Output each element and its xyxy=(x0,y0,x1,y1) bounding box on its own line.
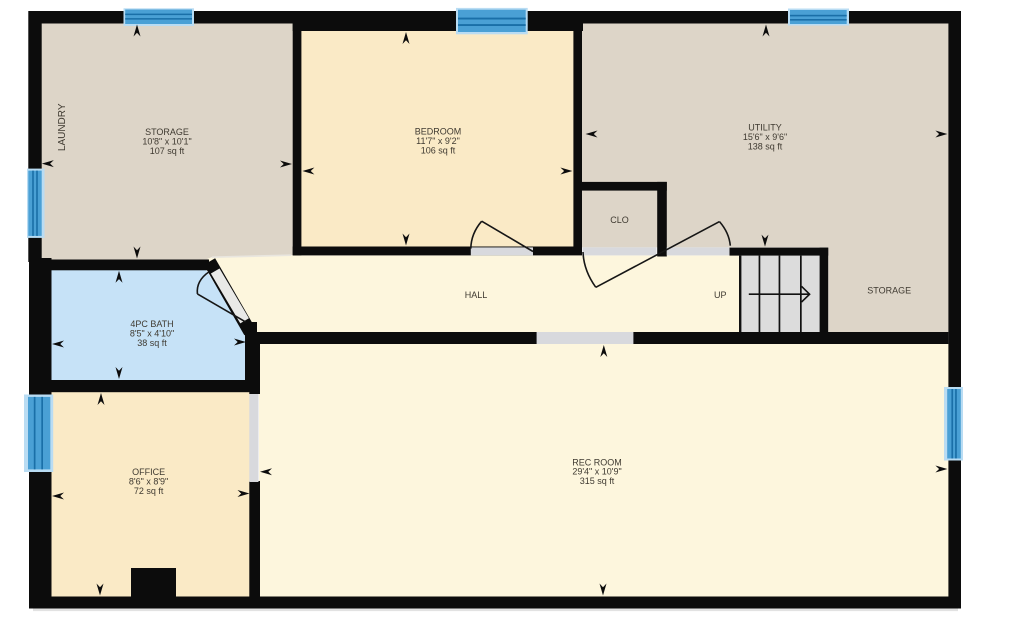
svg-text:10'8" x 10'1": 10'8" x 10'1" xyxy=(142,137,191,147)
svg-text:138 sq ft: 138 sq ft xyxy=(748,142,783,152)
svg-text:106 sq ft: 106 sq ft xyxy=(421,145,456,155)
svg-text:HALL: HALL xyxy=(465,290,488,300)
svg-text:15'6" x 9'6": 15'6" x 9'6" xyxy=(743,132,787,142)
svg-text:STORAGE: STORAGE xyxy=(145,127,189,137)
svg-text:UP: UP xyxy=(714,290,727,300)
svg-text:72 sq ft: 72 sq ft xyxy=(134,486,164,496)
svg-text:STORAGE: STORAGE xyxy=(867,286,911,296)
svg-text:38 sq ft: 38 sq ft xyxy=(137,338,167,348)
svg-text:CLO: CLO xyxy=(610,215,629,225)
svg-text:LAUNDRY: LAUNDRY xyxy=(57,103,68,151)
svg-text:315 sq ft: 315 sq ft xyxy=(580,476,615,486)
svg-text:107 sq ft: 107 sq ft xyxy=(150,146,185,156)
svg-text:UTILITY: UTILITY xyxy=(748,123,782,133)
